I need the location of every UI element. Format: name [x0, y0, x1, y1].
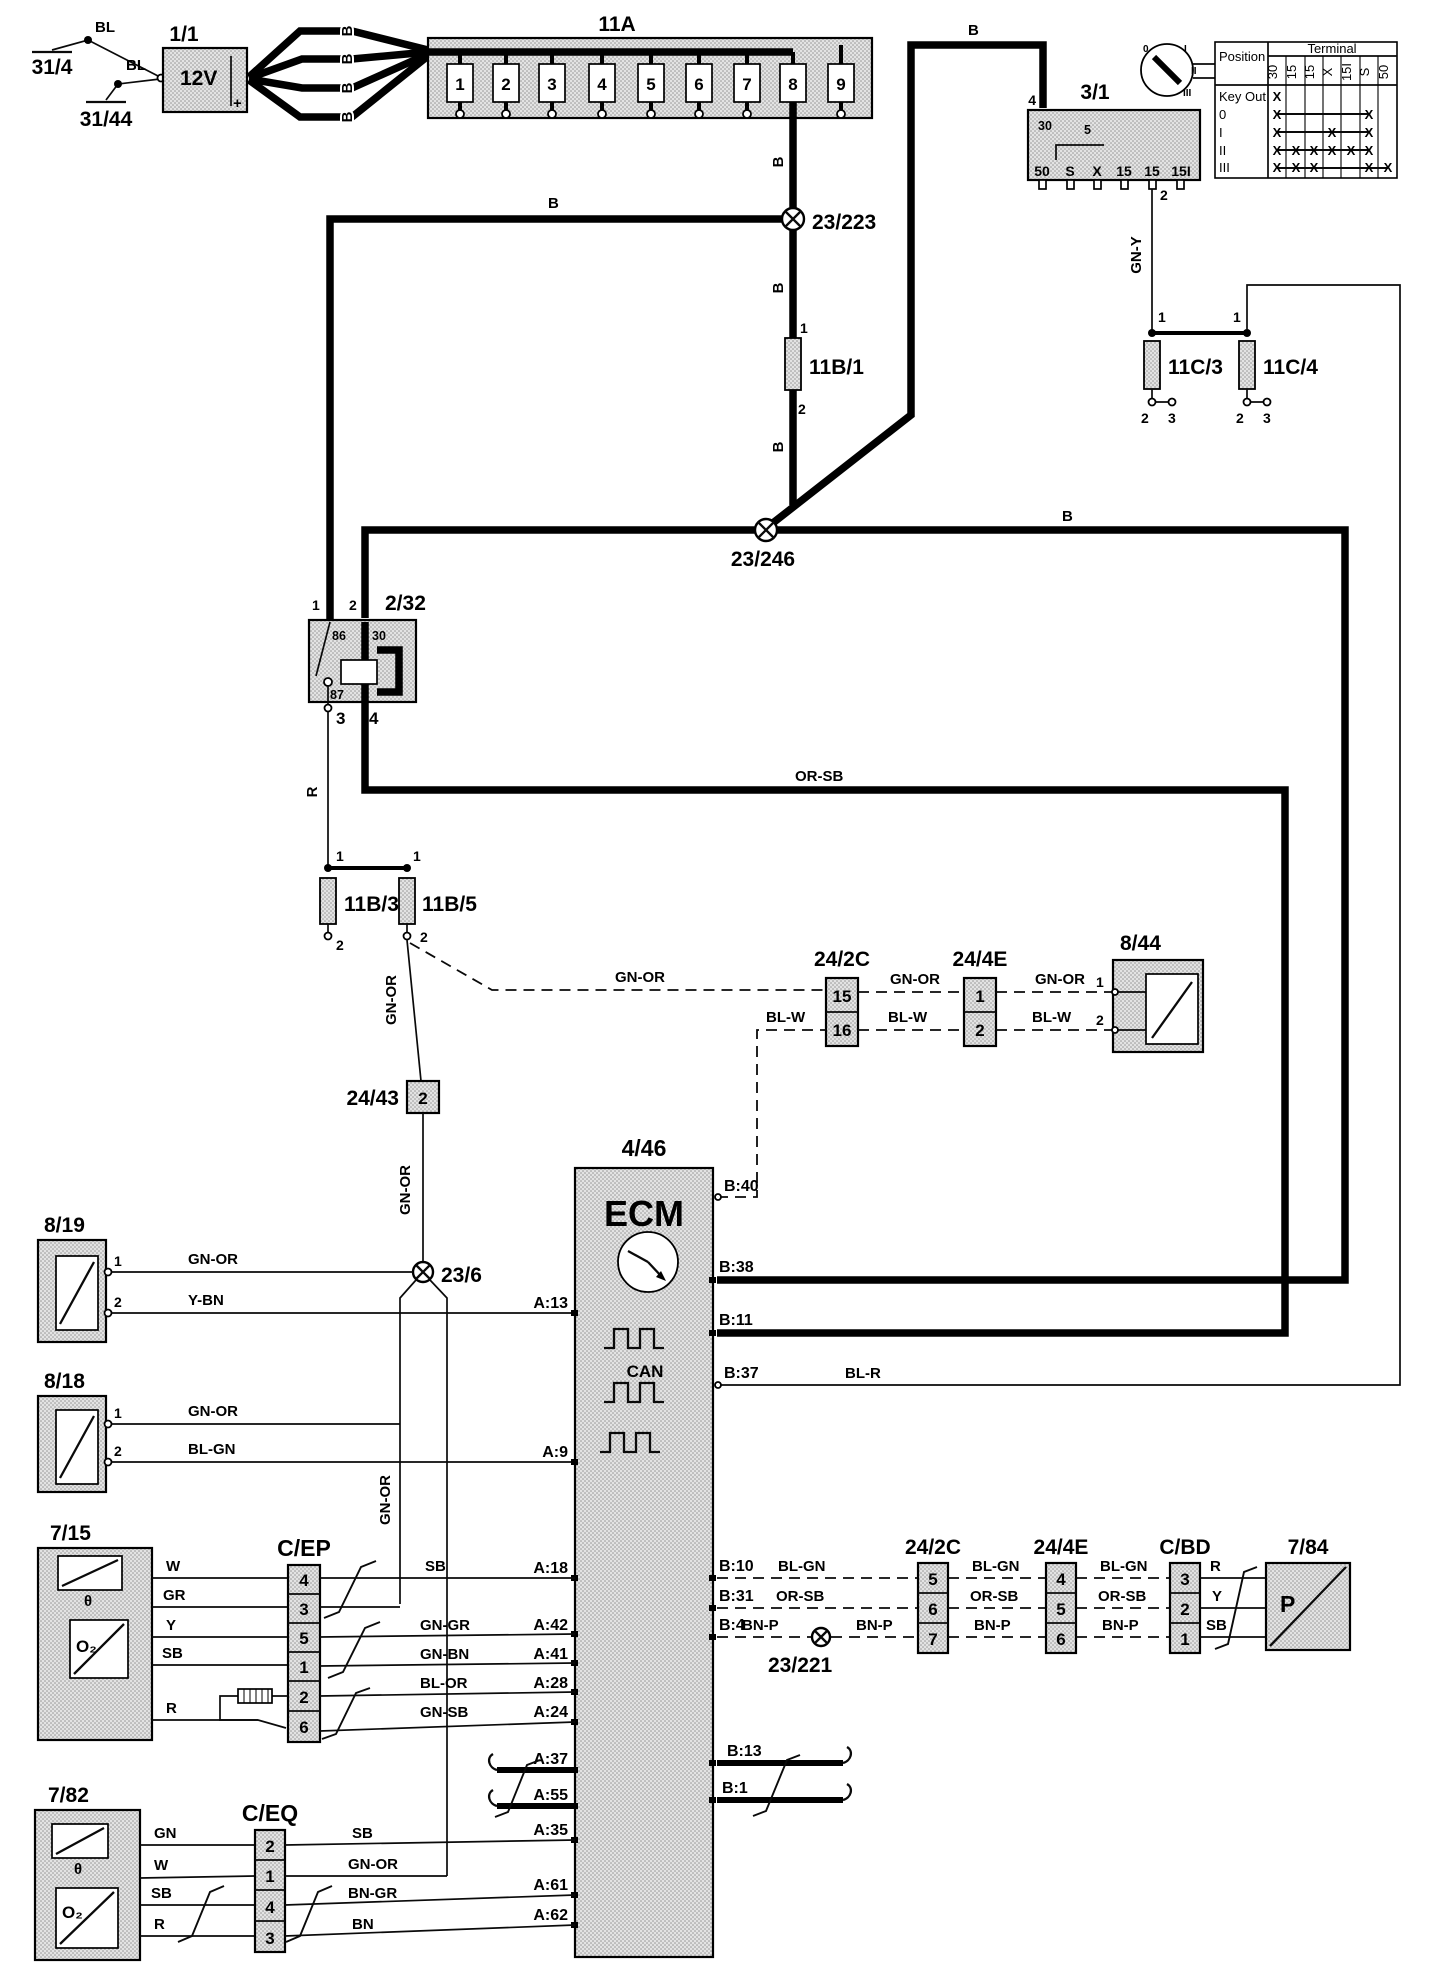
mark: X — [1384, 160, 1393, 175]
terminal-30: 30 — [1038, 119, 1052, 133]
pin-b13 — [709, 1760, 716, 1766]
key-pos-0: 0 — [1143, 44, 1149, 55]
pump-label: P — [1280, 1591, 1295, 1617]
pin-4: 4 — [265, 1898, 275, 1917]
pin-a37 — [571, 1767, 578, 1773]
pin-terminal — [1112, 1027, 1118, 1033]
fuse-number: 5 — [646, 75, 655, 94]
table-terminal-header: Terminal — [1307, 41, 1356, 56]
row-keyout: Key Out — [1219, 89, 1266, 104]
pin-label-a41: A:41 — [533, 1646, 568, 1663]
wire-label-bl-w: BL-W — [1032, 1009, 1072, 1026]
ecm-4-46: 4/46 ECM CAN — [575, 1135, 713, 1957]
wire-label-bl-gn: BL-GN — [1100, 1558, 1148, 1575]
fuse-id: 11C/3 — [1168, 356, 1223, 379]
key-pos-iii: III — [1183, 88, 1192, 99]
col-50: 50 — [1376, 65, 1391, 79]
shield-slash-icon — [286, 1886, 332, 1942]
fuse-number: 7 — [742, 75, 751, 94]
fuse-body — [1144, 341, 1160, 389]
mark: X — [1292, 160, 1301, 175]
stub-b13-hook — [843, 1747, 851, 1763]
wire-label-gn-or: GN-OR — [377, 1475, 394, 1525]
pin-label-a55: A:55 — [533, 1787, 568, 1804]
wire-label-w: W — [166, 1558, 181, 1575]
pump-id: 7/84 — [1288, 1536, 1329, 1559]
pin-6: 6 — [299, 1718, 308, 1737]
wire-label-r: R — [154, 1916, 165, 1933]
pin-2: 2 — [265, 1837, 274, 1856]
pin-label-b31: B:31 — [719, 1588, 754, 1605]
fuse-body — [320, 878, 336, 924]
shield-slash-icon — [324, 1561, 376, 1618]
fuse-id: 11B/1 — [809, 356, 864, 379]
pin-1: 1 — [975, 987, 984, 1006]
pin-4: 4 — [1028, 92, 1036, 108]
can-label: CAN — [627, 1362, 664, 1381]
fuse-terminal — [695, 110, 703, 118]
pin-1: 1 — [1158, 309, 1166, 325]
terminal-stub — [1149, 180, 1156, 189]
mark: X — [1292, 143, 1301, 158]
pin-1: 1 — [1096, 974, 1104, 990]
mark: X — [1273, 125, 1282, 140]
connector-id: C/EQ — [242, 1800, 298, 1826]
terminal-50: 50 — [1034, 163, 1050, 179]
connector-24-4e-bot: 24/4E 4 5 6 — [1034, 1536, 1089, 1653]
fuse-id: 11B/5 — [422, 893, 477, 916]
switch-8-18: 8/18 1 2 — [38, 1370, 122, 1492]
fuse-number: 4 — [597, 75, 607, 94]
terminal-stub — [1094, 180, 1101, 189]
terminal-stub — [1177, 180, 1184, 189]
switch-id: 8/18 — [44, 1370, 85, 1393]
pin-1: 1 — [312, 597, 320, 613]
pin-terminal — [1149, 399, 1156, 406]
wire-label-bl-gn: BL-GN — [778, 1558, 826, 1575]
key-pos-ii: II — [1191, 66, 1197, 77]
pin-2: 2 — [1141, 410, 1149, 426]
pin-b11 — [709, 1330, 716, 1336]
wire-label-or-sb: OR-SB — [776, 1588, 825, 1605]
pin-a13 — [571, 1310, 578, 1316]
fuse-body — [399, 878, 415, 924]
splice-23-6: 23/6 — [413, 1262, 482, 1287]
fuse-number: 8 — [788, 75, 797, 94]
mark: X — [1365, 107, 1374, 122]
mark: X — [1273, 89, 1282, 104]
wire-label-sb: SB — [162, 1645, 183, 1662]
pin-2: 2 — [1096, 1012, 1104, 1028]
wire-label-gn-or: GN-OR — [383, 975, 400, 1025]
battery-voltage: 12V — [180, 67, 217, 90]
pin-6: 6 — [928, 1600, 937, 1619]
row-iii: III — [1219, 160, 1230, 175]
wire-label-b: B — [339, 25, 356, 36]
terminal-15b: 15 — [1144, 163, 1160, 179]
wire-label-bl-gn: BL-GN — [972, 1558, 1020, 1575]
wire-label-b: B — [968, 22, 979, 39]
wire-label-bn-p: BN-P — [1102, 1617, 1139, 1634]
pin-label-a13: A:13 — [533, 1295, 568, 1312]
pin-a55 — [571, 1803, 578, 1809]
pin-label-a28: A:28 — [533, 1675, 568, 1692]
pin-1: 1 — [336, 848, 344, 864]
wire-gn-or-branch-cep — [400, 1280, 416, 1604]
switch-id: 8/44 — [1120, 932, 1161, 955]
wire-r2 — [152, 1720, 286, 1728]
pin-5: 5 — [928, 1570, 937, 1589]
ignition-switch-3-1: 3/1 4 30 5 50 S X 15 15 15I 2 — [1028, 81, 1200, 203]
pin-terminal — [105, 1459, 112, 1466]
pin-2: 2 — [1236, 410, 1244, 426]
col-s: S — [1357, 67, 1372, 76]
pin-label-a61: A:61 — [533, 1877, 568, 1894]
pin-1: 1 — [800, 320, 808, 336]
wire-label-bl-w: BL-W — [888, 1009, 928, 1026]
mark: X — [1365, 143, 1374, 158]
pin-terminal — [1264, 399, 1271, 406]
wire-b-246-right-to-b38 — [717, 530, 1345, 1280]
pin-2: 2 — [1180, 1600, 1189, 1619]
ignition-position-table: Position Terminal 30 15 15 X 15I S 50 Ke… — [1215, 41, 1397, 178]
terminal-stub — [1067, 180, 1074, 189]
pin-label-b10: B:10 — [719, 1558, 754, 1575]
wire-label-b: B — [548, 195, 559, 212]
pin-terminal — [1169, 399, 1176, 406]
pin-1: 1 — [1233, 309, 1241, 325]
wire-label-b: B — [770, 441, 787, 452]
splice-label: 23/221 — [768, 1654, 833, 1677]
terminal-x: X — [1092, 163, 1102, 179]
wire-label-r: R — [304, 786, 321, 797]
wire-label-gn-bn: GN-BN — [420, 1646, 469, 1663]
fuse-terminal — [598, 110, 606, 118]
pin-2: 2 — [114, 1443, 122, 1459]
pin-b38 — [709, 1277, 716, 1283]
relay-coil — [341, 660, 377, 684]
fuse-terminal — [647, 110, 655, 118]
pin-label-a9: A:9 — [542, 1444, 568, 1461]
pin-1: 1 — [1180, 1630, 1189, 1649]
ecm-name: ECM — [604, 1193, 684, 1234]
wire-label-bl: BL — [95, 19, 115, 36]
connector-24-4e-top: 24/4E 1 2 — [953, 948, 1008, 1046]
pin-2: 2 — [420, 929, 428, 945]
splice-label: 23/6 — [441, 1264, 482, 1287]
fuse-body — [785, 338, 801, 390]
mark: X — [1347, 143, 1356, 158]
connector-id: 24/4E — [953, 948, 1008, 971]
wire-label-gn-or: GN-OR — [188, 1251, 238, 1268]
fuse-terminal — [456, 110, 464, 118]
battery-plus: + — [233, 95, 242, 112]
wire-label-or-sb: OR-SB — [795, 768, 844, 785]
switch-8-19: 8/19 1 2 — [38, 1214, 122, 1342]
col-15i: 15I — [1339, 63, 1354, 81]
theta-icon: θ — [84, 1593, 92, 1610]
pin-1: 1 — [299, 1658, 308, 1677]
wire-bn-gr-a61 — [285, 1895, 575, 1905]
splice-23-221: 23/221 — [768, 1628, 833, 1677]
fuse-number: 9 — [836, 75, 845, 94]
switch-id: 8/19 — [44, 1214, 85, 1237]
pin-a9 — [571, 1459, 578, 1465]
wire-label-bl-w: BL-W — [766, 1009, 806, 1026]
terminal-stub — [1039, 180, 1046, 189]
pin-2: 2 — [418, 1089, 427, 1108]
pin-2: 2 — [114, 1294, 122, 1310]
wire-label-b: B — [339, 111, 356, 122]
terminal-15: 15 — [1116, 163, 1132, 179]
pin-3: 3 — [1168, 410, 1176, 426]
ferrite-shield-loop — [220, 1689, 288, 1720]
wire-label-or-sb: OR-SB — [1098, 1588, 1147, 1605]
pin-b10 — [709, 1575, 716, 1581]
pin-label-b38: B:38 — [719, 1259, 754, 1276]
wire-label-bl: BL — [126, 57, 146, 74]
pin-2: 2 — [1160, 187, 1168, 203]
battery-id: 1/1 — [169, 23, 199, 46]
row-ii: II — [1219, 143, 1226, 158]
wire-label-w: W — [154, 1857, 169, 1874]
terminal-15i: 15I — [1171, 163, 1190, 179]
ground-label: 31/44 — [80, 108, 133, 131]
connector-24-2c-top: 24/2C 15 16 — [814, 948, 870, 1046]
mark: X — [1365, 125, 1374, 140]
wire-label-sb: SB — [425, 1558, 446, 1575]
col-x: X — [1320, 67, 1335, 76]
wire-label-gn-or: GN-OR — [397, 1165, 414, 1215]
o2-label: O₂ — [76, 1637, 97, 1656]
pin-4: 4 — [1056, 1570, 1066, 1589]
stub-a55-hook — [489, 1790, 497, 1806]
wire-label-y: Y — [1212, 1588, 1222, 1605]
fuse-body — [1239, 341, 1255, 389]
pin-1: 1 — [265, 1867, 274, 1886]
wire-gn-or-riser — [407, 940, 421, 1081]
fuse-id: 11B/3 — [344, 893, 399, 916]
wire-label-bl-r: BL-R — [845, 1365, 881, 1382]
pin-label-b11: B:11 — [719, 1312, 753, 1329]
pin-2: 2 — [975, 1021, 984, 1040]
pin-4: 4 — [299, 1571, 309, 1590]
ignition-id: 3/1 — [1080, 81, 1110, 104]
mark: X — [1365, 160, 1374, 175]
connector-24-43: 2 24/43 — [346, 1081, 439, 1113]
connector-id: 24/2C — [905, 1536, 961, 1559]
pin-3: 3 — [336, 709, 345, 728]
pin-b1 — [709, 1797, 716, 1803]
fuse-number: 6 — [694, 75, 703, 94]
pin-3: 3 — [1180, 1570, 1189, 1589]
wire-label-b: B — [770, 282, 787, 293]
fuse-number: 2 — [501, 75, 510, 94]
battery-1-1: 1/1 12V + — [158, 23, 248, 112]
wire-sb-a35 — [285, 1840, 575, 1845]
pin-b4 — [709, 1634, 716, 1640]
wire-label-bn-gr: BN-GR — [348, 1885, 397, 1902]
fuse-terminal — [837, 110, 845, 118]
pin-b31 — [709, 1605, 716, 1611]
wire-bn-a62 — [285, 1925, 575, 1936]
mark: X — [1273, 160, 1282, 175]
wire-label-gn-or: GN-OR — [348, 1856, 398, 1873]
pin-terminal — [404, 933, 411, 940]
fuse-terminal — [502, 110, 510, 118]
ground-31-44: 31/44 BL — [80, 57, 160, 131]
pin-terminal — [325, 933, 332, 940]
relay-contact — [324, 678, 332, 686]
wire-label-bl-or: BL-OR — [420, 1675, 468, 1692]
fuse-terminal — [548, 110, 556, 118]
o2-label: O₂ — [62, 1903, 83, 1922]
wire-b-left — [330, 219, 782, 620]
pin-label-b4: B:4 — [719, 1617, 745, 1634]
fuses-11b3-11b5: 1 1 11B/3 2 11B/5 2 — [320, 848, 477, 953]
wire-label-gn-or: GN-OR — [615, 969, 665, 986]
fusebox-id: 11A — [598, 13, 635, 36]
battery-feed-wires: B B B B — [249, 25, 428, 122]
wire-label-bn-p: BN-P — [856, 1617, 893, 1634]
connector-cep: C/EP 4 3 5 1 2 6 — [277, 1535, 331, 1742]
wire-label-y: Y — [166, 1617, 176, 1634]
pin-label-b37: B:37 — [724, 1365, 759, 1382]
row-0: 0 — [1219, 107, 1226, 122]
ignition-key-icon: 0 I II III — [1141, 44, 1215, 99]
wiring-diagram-canvas: 31/4 BL 31/44 BL 1/1 12V + B B B B 11A 1… — [0, 0, 1456, 1980]
row-i: I — [1219, 125, 1223, 140]
pin-3: 3 — [1263, 410, 1271, 426]
wire-label-r: R — [1210, 1558, 1221, 1575]
pin-terminal — [325, 705, 332, 712]
pin-2: 2 — [299, 1688, 308, 1707]
pin-label-b1: B:1 — [722, 1780, 748, 1797]
pin-5: 5 — [299, 1629, 308, 1648]
stub-a37-hook — [489, 1754, 497, 1770]
sensor-id: 7/15 — [50, 1522, 91, 1545]
pin-label-a42: A:42 — [533, 1617, 568, 1634]
fuel-pump-7-84: 7/84 P — [1266, 1536, 1350, 1650]
wire-label-gn: GN — [154, 1825, 177, 1842]
wire-bl-r-loop — [717, 285, 1400, 1385]
table-position-header: Position — [1219, 49, 1265, 64]
pin-3: 3 — [299, 1600, 308, 1619]
relay-id: 2/32 — [385, 592, 426, 615]
connector-id: 24/4E — [1034, 1536, 1089, 1559]
wire-label-gr: GR — [163, 1587, 186, 1604]
pin-2: 2 — [349, 597, 357, 613]
wire-label-b: B — [1062, 508, 1073, 525]
ecm-left-pins: A:13 A:9 A:18 A:42 A:41 A:28 A:24 A:37 A… — [533, 1295, 578, 1928]
wire-label-sb: SB — [1206, 1617, 1227, 1634]
relay-86: 86 — [332, 629, 346, 643]
connector-id: 24/43 — [346, 1087, 399, 1110]
wire-label-gn-or: GN-OR — [188, 1403, 238, 1420]
wire-label-bn: BN — [352, 1916, 374, 1933]
wire-label-sb: SB — [151, 1885, 172, 1902]
shield-slash-icon — [328, 1622, 380, 1678]
splice-label: 23/246 — [731, 548, 795, 571]
mark: X — [1328, 125, 1337, 140]
pin-label-a24: A:24 — [533, 1704, 568, 1721]
terminal-s: S — [1065, 163, 1074, 179]
connector-id: C/BD — [1159, 1536, 1210, 1559]
b-feed-network: B B 23/223 B 1 11B/1 2 B B B 23/246 — [330, 22, 1345, 1280]
wiring-diagram-page: 31/4 BL 31/44 BL 1/1 12V + B B B B 11A 1… — [0, 0, 1456, 1980]
key-pos-i: I — [1184, 44, 1187, 55]
pin-b40-terminal — [715, 1194, 721, 1200]
wire-label-gn-or: GN-OR — [1035, 971, 1085, 988]
splice-23-223: 23/223 — [782, 208, 876, 234]
connector-id: C/EP — [277, 1535, 331, 1561]
terminal-stub — [1121, 180, 1128, 189]
wire-label-gn-y: GN-Y — [1128, 236, 1145, 274]
pin-label-a37: A:37 — [533, 1751, 568, 1768]
pin-terminal — [105, 1269, 112, 1276]
pin-label-a18: A:18 — [533, 1560, 568, 1577]
wire-label-gn-gr: GN-GR — [420, 1617, 470, 1634]
pin-5: 5 — [1056, 1600, 1065, 1619]
junction-dot — [114, 80, 122, 88]
ground-label: 31/4 — [32, 56, 73, 79]
wire-label-bn-p: BN-P — [742, 1617, 779, 1634]
junction-dot — [84, 36, 92, 44]
terminal-5: 5 — [1084, 123, 1091, 137]
wire-label-r: R — [166, 1700, 177, 1717]
mark: X — [1310, 143, 1319, 158]
mark: X — [1273, 107, 1282, 122]
pin-terminal — [105, 1421, 112, 1428]
mark: X — [1273, 143, 1282, 158]
connector-body — [288, 1565, 320, 1742]
pin-label-b13: B:13 — [727, 1743, 762, 1760]
pin-label-b40: B:40 — [724, 1178, 759, 1195]
wire-label-b: B — [339, 53, 356, 64]
fuse-number: 3 — [547, 75, 556, 94]
splice-label: 23/223 — [812, 211, 876, 234]
switch-8-44: 8/44 — [1112, 932, 1203, 1052]
pin-2: 2 — [336, 937, 344, 953]
ecm-id: 4/46 — [622, 1135, 667, 1161]
pin-b37-terminal — [715, 1382, 721, 1388]
pin-terminal — [1112, 989, 1118, 995]
pin-6: 6 — [1056, 1630, 1065, 1649]
wire-label-or-sb: OR-SB — [970, 1588, 1019, 1605]
pin-terminal — [105, 1310, 112, 1317]
connector-id: 24/2C — [814, 948, 870, 971]
sensor-id: 7/82 — [48, 1784, 89, 1807]
mark: X — [1328, 143, 1337, 158]
theta-icon: θ — [74, 1861, 82, 1878]
pin-1: 1 — [114, 1253, 122, 1269]
connector-cbd: C/BD 3 2 1 — [1159, 1536, 1210, 1653]
pin-4: 4 — [369, 709, 379, 728]
fuse-id: 11C/4 — [1263, 356, 1318, 379]
pin-1: 1 — [114, 1405, 122, 1421]
o2-sensor-rear-7-82: 7/82 θ O₂ — [35, 1784, 140, 1960]
wire-label-gn-or: GN-OR — [890, 971, 940, 988]
col-30: 30 — [1265, 65, 1280, 79]
pin-15: 15 — [833, 987, 852, 1006]
wire-label-y-bn: Y-BN — [188, 1292, 224, 1309]
wire-bl-2 — [106, 79, 160, 100]
ferrite-body — [238, 1689, 272, 1703]
wire-label-bl-gn: BL-GN — [188, 1441, 236, 1458]
col-15b: 15 — [1302, 65, 1317, 79]
fuse-terminal — [743, 110, 751, 118]
pin-3: 3 — [265, 1929, 274, 1948]
